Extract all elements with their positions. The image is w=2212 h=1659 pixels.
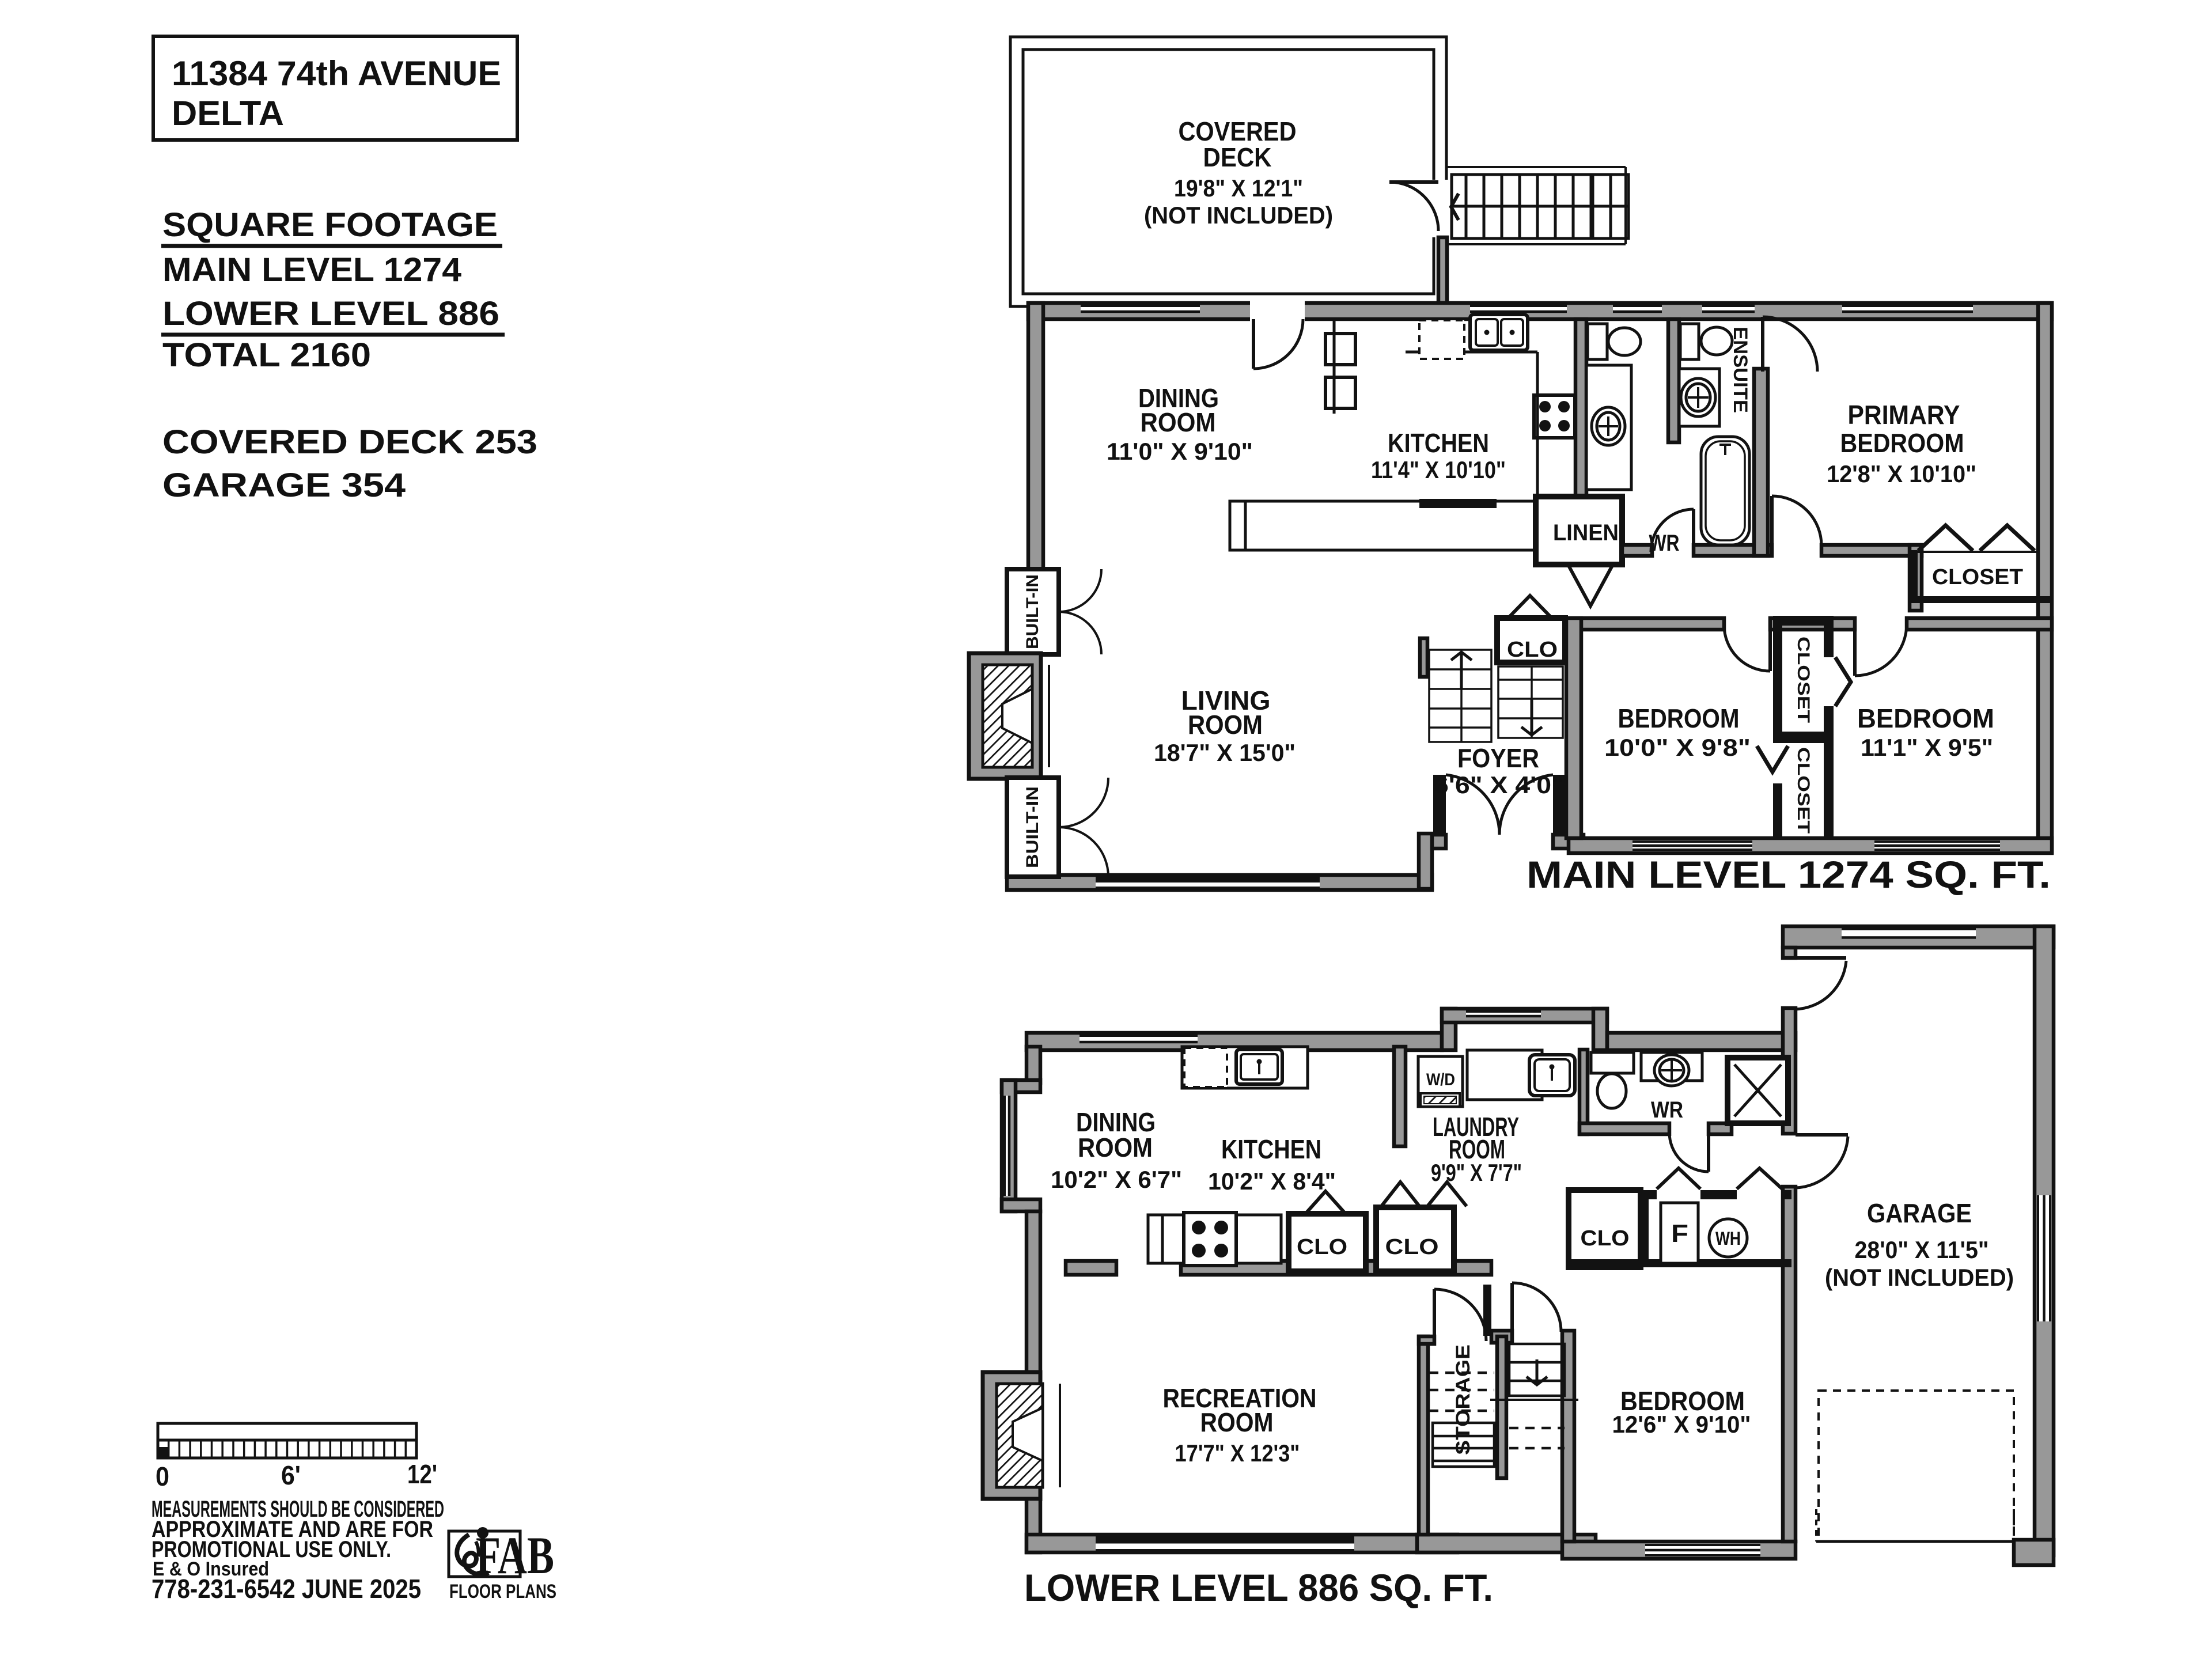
svg-text:KITCHEN: KITCHEN [1221,1134,1321,1164]
svg-text:MAIN LEVEL 1274: MAIN LEVEL 1274 [162,251,461,289]
svg-text:10'2" X 6'7": 10'2" X 6'7" [1051,1166,1182,1193]
svg-text:(NOT INCLUDED): (NOT INCLUDED) [1144,202,1333,229]
svg-text:12'6" X 9'10": 12'6" X 9'10" [1612,1411,1751,1438]
svg-text:ROOM: ROOM [1141,407,1216,437]
svg-text:GARAGE: GARAGE [1867,1198,1972,1228]
svg-text:18'7" X 15'0": 18'7" X 15'0" [1154,739,1296,766]
svg-text:CLOSET: CLOSET [1794,637,1813,723]
svg-text:FLOOR PLANS: FLOOR PLANS [449,1581,556,1603]
svg-text:BUILT-IN: BUILT-IN [1023,574,1042,649]
svg-text:11384 74th AVENUE: 11384 74th AVENUE [172,54,501,93]
svg-text:778-231-6542 JUNE 2025: 778-231-6542 JUNE 2025 [151,1574,421,1604]
svg-text:CLO: CLO [1297,1235,1347,1259]
svg-text:LINEN: LINEN [1553,520,1619,546]
svg-text:LOWER LEVEL 886 SQ. FT.: LOWER LEVEL 886 SQ. FT. [1024,1566,1493,1609]
svg-text:CLO: CLO [1581,1226,1630,1251]
svg-text:WH: WH [1715,1228,1741,1249]
svg-text:ROOM: ROOM [1200,1407,1274,1437]
svg-text:CLOSET: CLOSET [1794,747,1813,834]
svg-text:CLO: CLO [1385,1235,1439,1259]
svg-text:WR: WR [1649,531,1680,556]
svg-text:KITCHEN: KITCHEN [1388,428,1489,458]
svg-text:BEDROOM: BEDROOM [1840,428,1964,458]
svg-text:W/D: W/D [1426,1070,1455,1089]
svg-text:ROOM: ROOM [1188,710,1263,740]
svg-text:WR: WR [1651,1097,1683,1123]
svg-text:10'2" X 8'4": 10'2" X 8'4" [1208,1168,1336,1195]
svg-text:BUILT-IN: BUILT-IN [1023,786,1042,868]
svg-text:CLO: CLO [1507,638,1558,662]
svg-text:6': 6' [281,1460,301,1490]
svg-text:(NOT INCLUDED): (NOT INCLUDED) [1825,1264,2014,1291]
svg-text:28'0" X 11'5": 28'0" X 11'5" [1855,1236,1989,1263]
svg-text:FOYER: FOYER [1457,743,1539,773]
svg-text:19'8" X 12'1": 19'8" X 12'1" [1174,175,1303,202]
svg-text:9'9" X 7'7": 9'9" X 7'7" [1431,1159,1522,1186]
svg-text:ROOM: ROOM [1078,1132,1153,1162]
svg-text:12'8" X 10'10": 12'8" X 10'10" [1827,460,1976,487]
svg-text:F: F [1671,1219,1688,1248]
svg-text:BEDROOM: BEDROOM [1857,703,1994,733]
svg-text:17'7" X 12'3": 17'7" X 12'3" [1175,1440,1300,1467]
svg-text:ENSUITE: ENSUITE [1729,327,1751,413]
svg-text:11'1" X 9'5": 11'1" X 9'5" [1861,734,1993,761]
svg-text:10'0" X 9'8": 10'0" X 9'8" [1604,734,1751,761]
svg-text:BEDROOM: BEDROOM [1618,703,1740,733]
svg-text:DELTA: DELTA [172,94,284,132]
svg-text:0: 0 [156,1461,169,1491]
svg-text:11'4" X 10'10": 11'4" X 10'10" [1371,456,1506,483]
svg-text:COVERED DECK 253: COVERED DECK 253 [162,423,537,461]
svg-text:11'0" X 9'10": 11'0" X 9'10" [1107,438,1253,465]
svg-text:STORAGE: STORAGE [1452,1344,1474,1455]
svg-text:FAB: FAB [476,1526,554,1585]
svg-text:6'6" X 4'0": 6'6" X 4'0" [1434,771,1564,798]
svg-text:LOWER LEVEL 886: LOWER LEVEL 886 [162,295,499,332]
svg-text:GARAGE 354: GARAGE 354 [162,467,406,504]
svg-text:TOTAL 2160: TOTAL 2160 [162,336,371,374]
svg-text:DECK: DECK [1203,142,1272,172]
svg-text:MAIN LEVEL 1274 SQ. FT.: MAIN LEVEL 1274 SQ. FT. [1527,853,2051,896]
svg-text:CLOSET: CLOSET [1932,565,2023,589]
svg-text:12': 12' [407,1459,437,1489]
svg-text:PRIMARY: PRIMARY [1848,400,1960,430]
svg-text:SQUARE FOOTAGE: SQUARE FOOTAGE [162,206,498,244]
